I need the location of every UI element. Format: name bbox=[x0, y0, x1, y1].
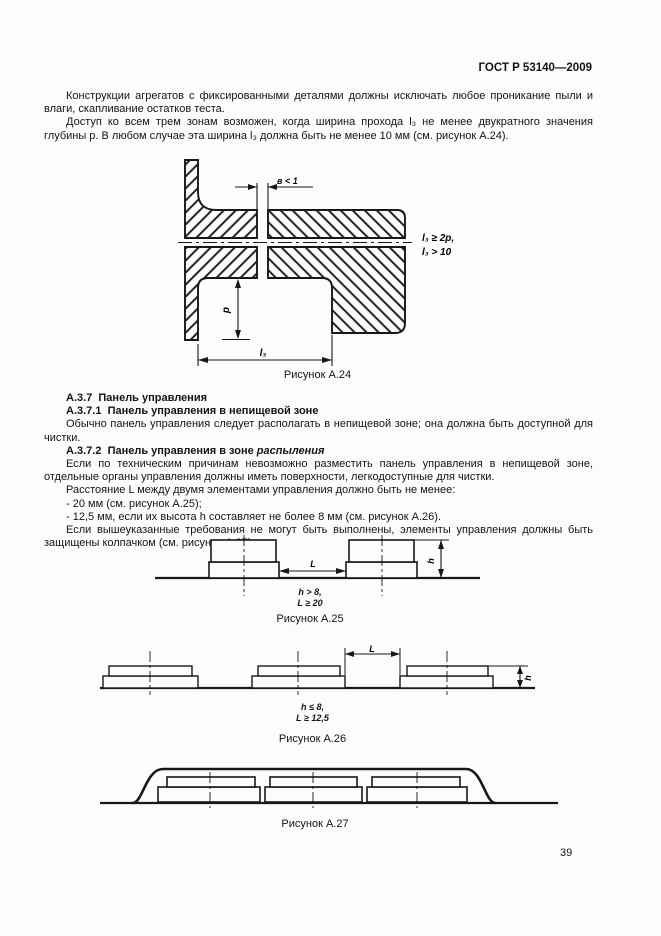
a24-gap-dimension: в < 1 bbox=[235, 176, 313, 210]
a24-upper-right-piece bbox=[268, 210, 405, 238]
a25-right-control bbox=[346, 540, 417, 578]
figure-a26-condition: h ≤ 8, L ≥ 12,5 bbox=[95, 702, 530, 724]
figure-a26-caption: Рисунок А.26 bbox=[95, 733, 530, 745]
a27-control-1 bbox=[158, 777, 260, 802]
document-number: ГОСТ Р 53140—2009 bbox=[44, 62, 592, 74]
paragraph-a372-2: Расстояние L между двумя элементами упра… bbox=[44, 484, 593, 497]
a24-note-line2: l₃ > 10 bbox=[422, 247, 452, 258]
a24-upper-left-piece bbox=[185, 160, 257, 238]
a24-lower-left-piece bbox=[185, 247, 257, 340]
a26-distance-dimension: L bbox=[345, 645, 400, 675]
list-item-125mm: - 12,5 мм, если их высота h составляет н… bbox=[44, 511, 593, 524]
heading-a372-prefix: А.3.7.2 Панель управления в зоне bbox=[66, 445, 257, 457]
figure-a27-caption: Рисунок А.27 bbox=[100, 818, 530, 830]
a26-control-3 bbox=[400, 666, 493, 688]
a26-distance-label: L bbox=[369, 645, 375, 654]
figure-a27-drawing bbox=[100, 758, 560, 812]
paragraph-construction: Конструкции агрегатов с фиксированными д… bbox=[44, 90, 593, 116]
paragraph-a371: Обычно панель управления следует распола… bbox=[44, 418, 593, 444]
a24-width-dimension: l₃ bbox=[198, 335, 332, 366]
a26-height-label: h bbox=[523, 675, 533, 681]
a24-width-label: l₃ bbox=[260, 348, 267, 359]
heading-a37: А.3.7 Панель управления bbox=[44, 392, 593, 405]
figure-a24-caption: Рисунок А.24 bbox=[150, 369, 485, 381]
figure-a25-caption: Рисунок А.25 bbox=[150, 613, 470, 625]
a26-control-1 bbox=[103, 666, 198, 688]
list-item-20mm: - 20 мм (см. рисунок А.25); bbox=[44, 498, 593, 511]
figure-a26-drawing: L h bbox=[95, 645, 540, 701]
document-page: ГОСТ Р 53140—2009 Конструкции агрегатов … bbox=[0, 0, 661, 936]
page-number: 39 bbox=[560, 847, 590, 859]
figure-a25-condition: h > 8, L ≥ 20 bbox=[150, 587, 470, 609]
a25-height-dimension: h bbox=[414, 540, 449, 578]
a25-distance-dimension: L bbox=[279, 559, 346, 574]
heading-a372-italic: распыления bbox=[257, 445, 325, 457]
section-a37: А.3.7 Панель управления А.3.7.1 Панель у… bbox=[44, 392, 593, 550]
a25-condition-line1: h > 8, bbox=[150, 587, 470, 598]
a24-requirement-note: l₃ ≥ 2p, l₃ > 10 bbox=[422, 233, 454, 258]
a26-control-2 bbox=[252, 666, 345, 688]
figure-a24-drawing: в < 1 p l₃ l₃ ≥ 2p, l₃ > 10 bbox=[150, 158, 480, 383]
a27-control-2 bbox=[265, 777, 362, 802]
a24-note-line1: l₃ ≥ 2p, bbox=[422, 233, 454, 244]
heading-a371: А.3.7.1 Панель управления в непищевой зо… bbox=[44, 405, 593, 418]
a25-height-label: h bbox=[426, 558, 436, 564]
a25-distance-label: L bbox=[310, 559, 316, 569]
a24-lower-right-piece bbox=[268, 247, 405, 333]
a26-condition-line1: h ≤ 8, bbox=[95, 702, 530, 713]
paragraph-a372-1: Если по техническим причинам невозможно … bbox=[44, 458, 593, 484]
a24-depth-label: p bbox=[221, 307, 232, 314]
paragraph-access: Доступ ко всем трем зонам возможен, когд… bbox=[44, 116, 593, 142]
heading-a372: А.3.7.2 Панель управления в зоне распыле… bbox=[44, 445, 593, 458]
a26-height-dimension: h bbox=[488, 666, 533, 688]
a24-gap-label: в < 1 bbox=[277, 176, 298, 186]
intro-paragraphs: Конструкции агрегатов с фиксированными д… bbox=[44, 90, 593, 143]
a25-condition-line2: L ≥ 20 bbox=[150, 598, 470, 609]
a24-depth-dimension: p bbox=[221, 279, 250, 340]
a26-condition-line2: L ≥ 12,5 bbox=[95, 713, 530, 724]
